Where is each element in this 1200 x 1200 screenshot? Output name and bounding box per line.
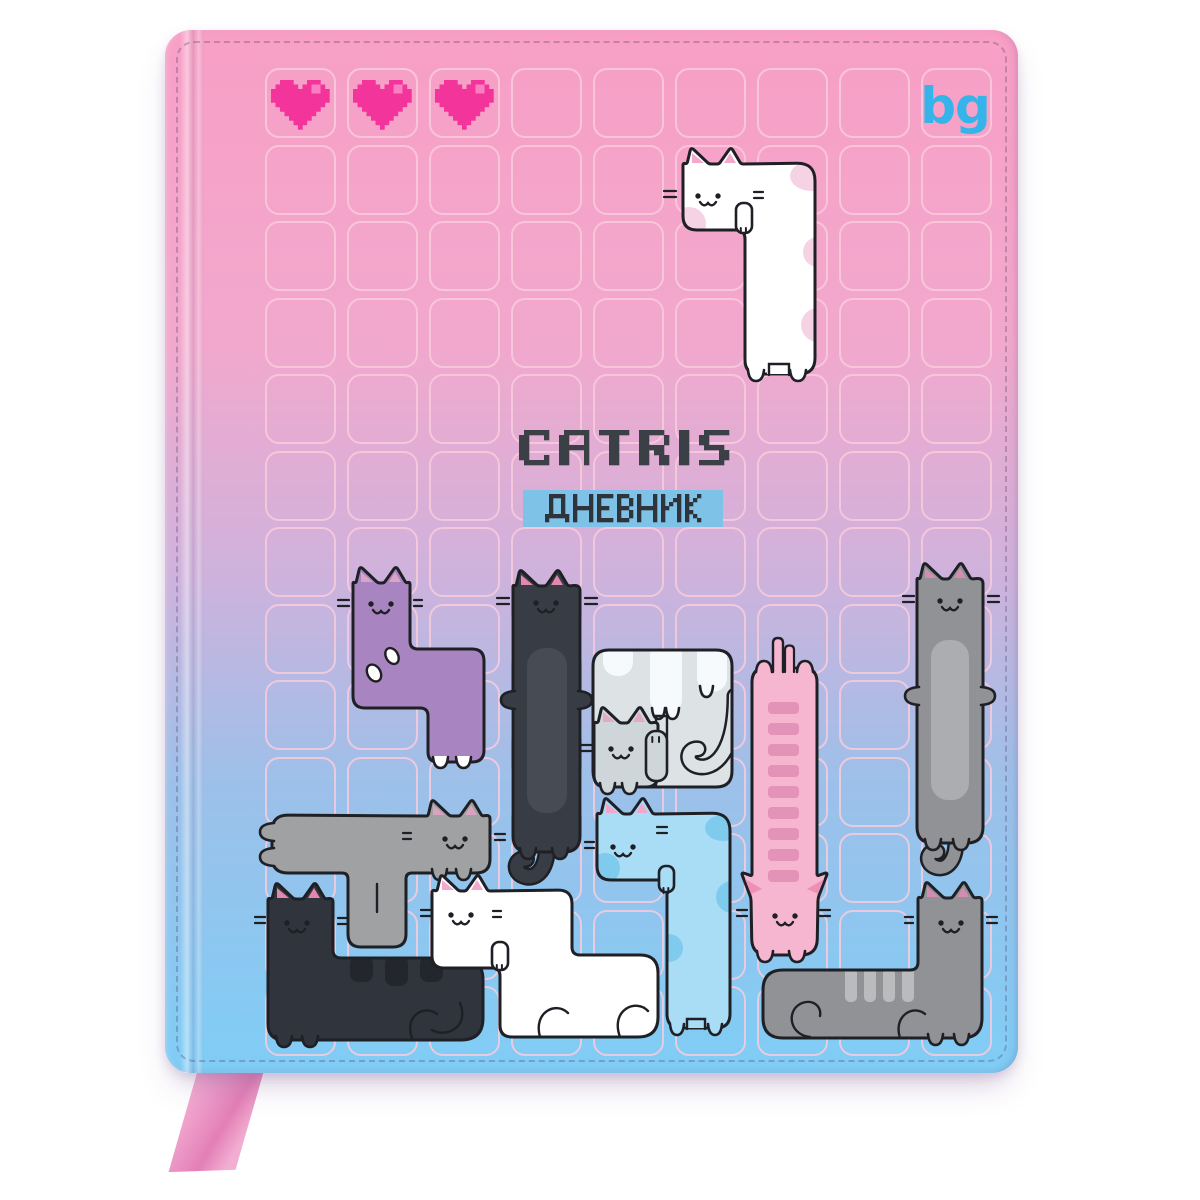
grid-cell xyxy=(265,910,336,980)
grid-cell xyxy=(265,374,336,444)
grid-cell xyxy=(921,910,992,980)
grid-cell xyxy=(839,986,910,1056)
grid-cell xyxy=(429,833,500,903)
grid-cell xyxy=(675,680,746,750)
grid-cell xyxy=(347,68,418,138)
grid-cell xyxy=(511,680,582,750)
grid-cell xyxy=(593,910,664,980)
grid-cell xyxy=(265,833,336,903)
grid-cell xyxy=(757,604,828,674)
grid-cell xyxy=(921,604,992,674)
grid-cell xyxy=(511,68,582,138)
grid-cell xyxy=(347,221,418,291)
grid-cell xyxy=(593,527,664,597)
grid-cell xyxy=(757,910,828,980)
grid-cell xyxy=(675,374,746,444)
grid-cell xyxy=(511,986,582,1056)
grid-cell xyxy=(265,68,336,138)
grid-cell xyxy=(511,298,582,368)
grid-cell xyxy=(757,298,828,368)
brand-logo: bg xyxy=(914,76,996,136)
grid-cell xyxy=(593,451,664,521)
grid-cell xyxy=(921,451,992,521)
grid-cell xyxy=(347,680,418,750)
grid-cell xyxy=(921,527,992,597)
grid-cell xyxy=(347,145,418,215)
grid-cell xyxy=(839,451,910,521)
grid-cell xyxy=(675,451,746,521)
grid-cell xyxy=(511,374,582,444)
grid-cell xyxy=(347,986,418,1056)
grid-cell xyxy=(511,757,582,827)
grid-cell xyxy=(839,604,910,674)
grid-cell xyxy=(675,527,746,597)
grid-cell xyxy=(839,68,910,138)
grid-cell xyxy=(757,757,828,827)
grid-cell xyxy=(757,374,828,444)
grid-cell xyxy=(265,680,336,750)
grid-cell xyxy=(511,604,582,674)
grid-cell xyxy=(593,680,664,750)
grid-cell xyxy=(429,680,500,750)
grid-cell xyxy=(593,833,664,903)
grid-cell xyxy=(757,986,828,1056)
grid-cell xyxy=(593,145,664,215)
grid-cell xyxy=(839,757,910,827)
grid-cell xyxy=(593,221,664,291)
grid-cell xyxy=(511,145,582,215)
grid-cell xyxy=(347,604,418,674)
grid-cell xyxy=(675,757,746,827)
grid-cell xyxy=(593,374,664,444)
grid-cell xyxy=(839,374,910,444)
grid-cell xyxy=(675,910,746,980)
product-photo: bg xyxy=(0,0,1200,1200)
grid-cell xyxy=(593,986,664,1056)
grid-cell xyxy=(429,145,500,215)
grid-cell xyxy=(429,604,500,674)
grid-cell xyxy=(921,145,992,215)
grid-cell xyxy=(265,145,336,215)
grid-cell xyxy=(429,527,500,597)
grid-cell xyxy=(347,374,418,444)
grid-cell xyxy=(429,298,500,368)
grid-cell xyxy=(757,680,828,750)
grid-cell xyxy=(921,221,992,291)
grid-cell xyxy=(921,833,992,903)
grid-cell xyxy=(265,527,336,597)
grid-cell xyxy=(757,451,828,521)
grid-cell xyxy=(265,451,336,521)
background-grid xyxy=(165,30,1018,1073)
grid-cell xyxy=(511,221,582,291)
grid-cell xyxy=(675,604,746,674)
grid-cell xyxy=(839,680,910,750)
grid-cell xyxy=(921,298,992,368)
grid-cell xyxy=(429,757,500,827)
grid-cell xyxy=(347,527,418,597)
grid-cell xyxy=(675,986,746,1056)
grid-cell xyxy=(511,527,582,597)
grid-cell xyxy=(347,298,418,368)
grid-cell xyxy=(839,145,910,215)
grid-cell xyxy=(675,298,746,368)
grid-cell xyxy=(429,68,500,138)
grid-cell xyxy=(675,221,746,291)
grid-cell xyxy=(429,451,500,521)
grid-cell xyxy=(429,374,500,444)
grid-cell xyxy=(839,527,910,597)
grid-cell xyxy=(757,145,828,215)
grid-cell xyxy=(839,833,910,903)
grid-cell xyxy=(347,833,418,903)
grid-cell xyxy=(429,910,500,980)
grid-cell xyxy=(265,298,336,368)
grid-cell xyxy=(593,298,664,368)
grid-cell xyxy=(839,221,910,291)
grid-cell xyxy=(921,680,992,750)
grid-cell xyxy=(921,986,992,1056)
grid-cell xyxy=(839,910,910,980)
grid-cell xyxy=(675,145,746,215)
grid-cell xyxy=(511,910,582,980)
grid-cell xyxy=(265,757,336,827)
grid-cell xyxy=(265,221,336,291)
grid-cell xyxy=(347,757,418,827)
grid-cell xyxy=(265,986,336,1056)
notebook-cover: bg xyxy=(165,30,1018,1073)
grid-cell xyxy=(511,451,582,521)
grid-cell xyxy=(921,757,992,827)
grid-cell xyxy=(675,833,746,903)
grid-cell xyxy=(511,833,582,903)
grid-cell xyxy=(347,910,418,980)
grid-cell xyxy=(757,527,828,597)
grid-cell xyxy=(593,604,664,674)
grid-cell xyxy=(265,604,336,674)
grid-cell xyxy=(921,374,992,444)
grid-cell xyxy=(429,221,500,291)
grid-cell xyxy=(429,986,500,1056)
grid-cell xyxy=(347,451,418,521)
grid-cell xyxy=(757,833,828,903)
grid-cell xyxy=(675,68,746,138)
grid-cell xyxy=(757,221,828,291)
grid-cell xyxy=(757,68,828,138)
grid-cell xyxy=(593,68,664,138)
grid-cell xyxy=(839,298,910,368)
grid-cell xyxy=(593,757,664,827)
